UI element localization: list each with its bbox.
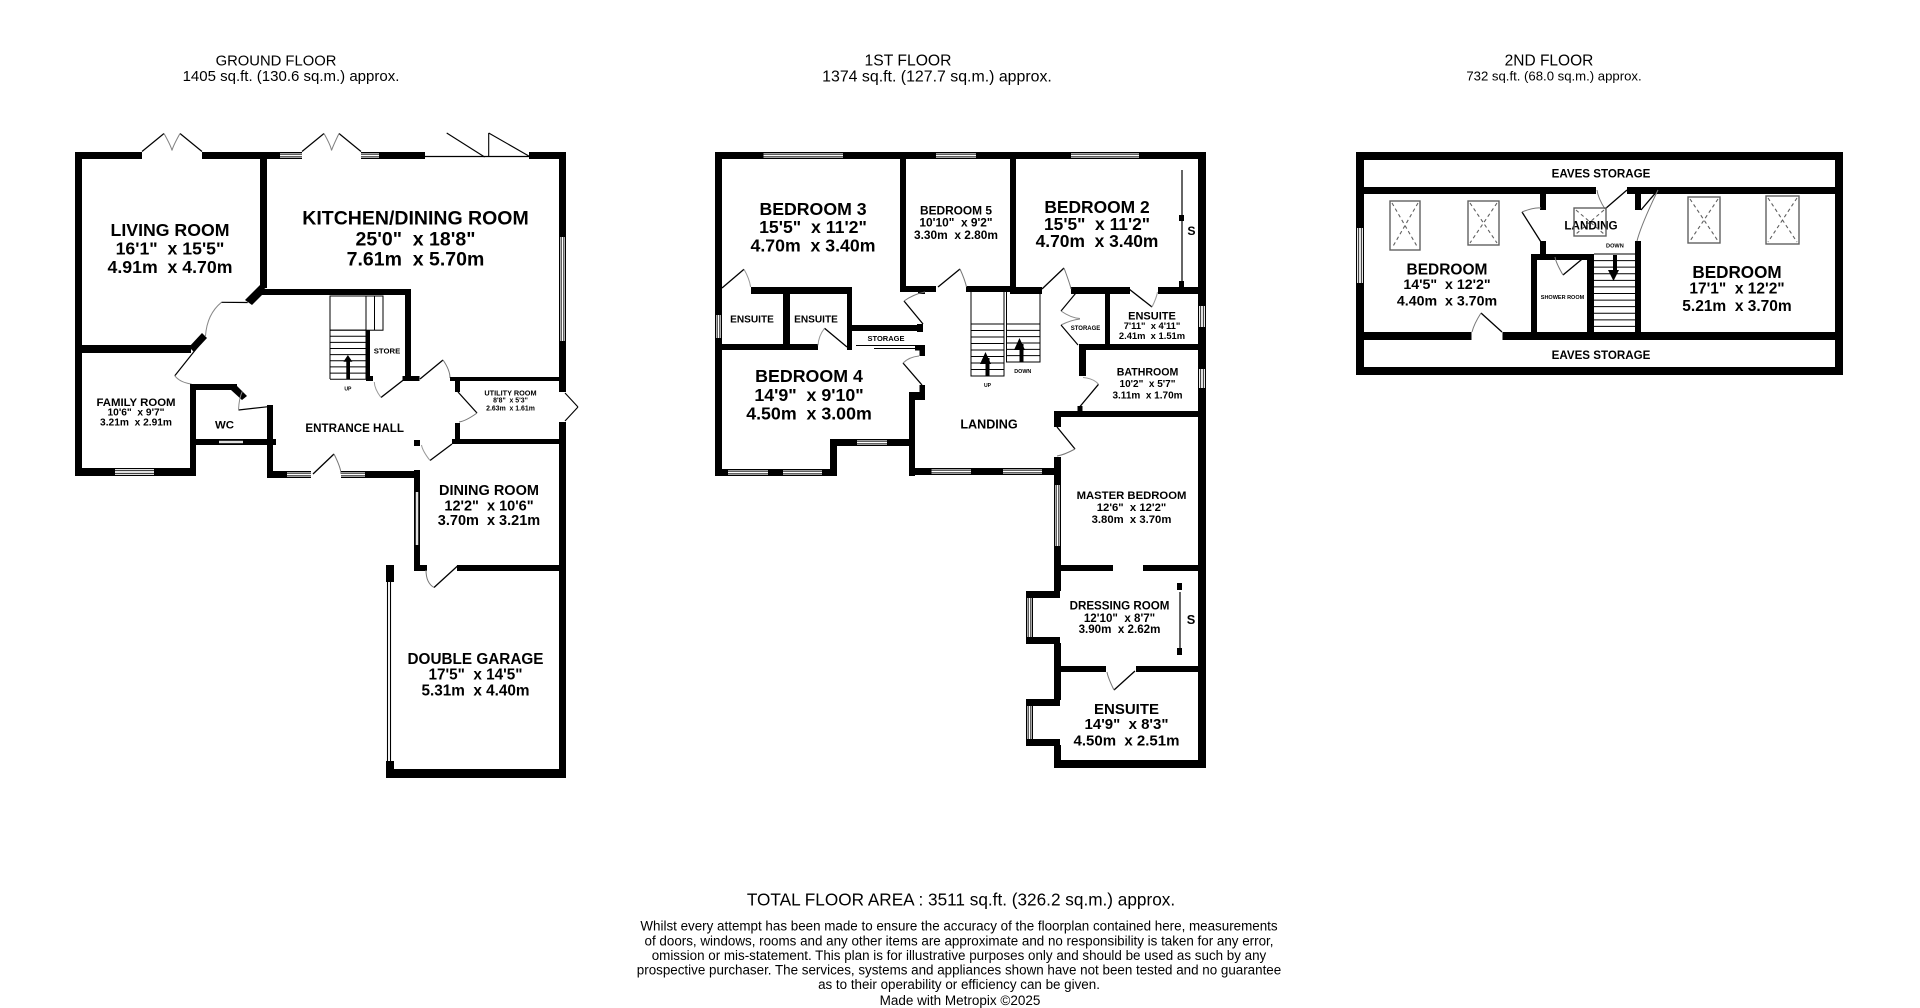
- svg-text:5.31m x 4.40m: 5.31m x 4.40m: [421, 682, 529, 699]
- svg-text:1ST FLOOR: 1ST FLOOR: [865, 53, 952, 70]
- svg-text:STORE: STORE: [374, 347, 401, 356]
- svg-text:STORAGE: STORAGE: [1071, 326, 1101, 332]
- svg-text:2.41m x 1.51m: 2.41m x 1.51m: [1119, 330, 1185, 341]
- svg-text:14'9" x 8'3": 14'9" x 8'3": [1085, 716, 1169, 733]
- svg-text:DINING ROOM: DINING ROOM: [439, 483, 539, 499]
- svg-text:17'1" x 12'2": 17'1" x 12'2": [1689, 281, 1784, 298]
- svg-text:3.80m x 3.70m: 3.80m x 3.70m: [1092, 514, 1172, 526]
- svg-text:LIVING ROOM: LIVING ROOM: [111, 220, 230, 240]
- svg-text:732 sq.ft. (68.0 sq.m.) approx: 732 sq.ft. (68.0 sq.m.) approx.: [1466, 69, 1641, 84]
- svg-text:2.63m x 1.61m: 2.63m x 1.61m: [486, 405, 535, 412]
- svg-text:MASTER BEDROOM: MASTER BEDROOM: [1077, 490, 1187, 502]
- svg-text:15'5" x 11'2": 15'5" x 11'2": [759, 217, 867, 237]
- svg-text:10'2" x 5'7": 10'2" x 5'7": [1120, 379, 1176, 390]
- svg-text:WC: WC: [215, 420, 234, 432]
- svg-text:4.50m x 2.51m: 4.50m x 2.51m: [1074, 733, 1180, 750]
- svg-text:4.40m x 3.70m: 4.40m x 3.70m: [1397, 294, 1497, 310]
- svg-text:DOWN: DOWN: [1606, 244, 1624, 250]
- svg-text:4.70m x 3.40m: 4.70m x 3.40m: [751, 236, 876, 256]
- svg-text:UP: UP: [984, 383, 992, 389]
- svg-text:16'1" x 15'5": 16'1" x 15'5": [116, 239, 225, 259]
- svg-text:14'5" x 12'2": 14'5" x 12'2": [1403, 277, 1490, 293]
- svg-text:1374 sq.ft. (127.7 sq.m.) appr: 1374 sq.ft. (127.7 sq.m.) approx.: [822, 69, 1052, 86]
- svg-text:BEDROOM: BEDROOM: [1692, 263, 1781, 282]
- svg-text:ENTRANCE HALL: ENTRANCE HALL: [305, 422, 404, 435]
- svg-text:as to their operability or eff: as to their operability or efficiency ca…: [818, 977, 1100, 992]
- svg-text:3.90m x 2.62m: 3.90m x 2.62m: [1079, 623, 1161, 636]
- svg-text:5.21m x 3.70m: 5.21m x 3.70m: [1682, 298, 1791, 315]
- svg-text:LANDING: LANDING: [960, 417, 1018, 431]
- svg-text:DOWN: DOWN: [1014, 369, 1031, 375]
- svg-text:BEDROOM 4: BEDROOM 4: [755, 366, 863, 386]
- svg-text:Whilst every attempt has been: Whilst every attempt has been made to en…: [640, 919, 1277, 934]
- svg-text:7.61m x 5.70m: 7.61m x 5.70m: [347, 249, 485, 271]
- svg-text:UTILITY ROOM: UTILITY ROOM: [484, 389, 536, 398]
- svg-text:prospective purchaser. The ser: prospective purchaser. The services, sys…: [637, 963, 1281, 978]
- svg-text:omission or mis-statement. Thi: omission or mis-statement. This plan is …: [652, 948, 1267, 963]
- svg-text:EAVES STORAGE: EAVES STORAGE: [1552, 167, 1651, 180]
- svg-text:3.70m x 3.21m: 3.70m x 3.21m: [438, 513, 540, 529]
- svg-text:4.50m x 3.00m: 4.50m x 3.00m: [746, 404, 872, 424]
- svg-text:1405 sq.ft. (130.6 sq.m.) appr: 1405 sq.ft. (130.6 sq.m.) approx.: [183, 68, 400, 85]
- svg-text:2ND FLOOR: 2ND FLOOR: [1505, 52, 1594, 69]
- svg-text:4.91m x 4.70m: 4.91m x 4.70m: [108, 257, 233, 277]
- svg-text:12'6" x 12'2": 12'6" x 12'2": [1097, 502, 1166, 514]
- svg-text:3.21m x 2.91m: 3.21m x 2.91m: [100, 418, 172, 429]
- svg-text:EAVES STORAGE: EAVES STORAGE: [1552, 349, 1651, 362]
- svg-text:3.30m x 2.80m: 3.30m x 2.80m: [914, 228, 998, 242]
- svg-text:ENSUITE: ENSUITE: [730, 315, 774, 326]
- svg-text:S: S: [1187, 224, 1195, 238]
- svg-text:ENSUITE: ENSUITE: [794, 315, 838, 326]
- svg-text:KITCHEN/DINING ROOM: KITCHEN/DINING ROOM: [302, 208, 528, 230]
- svg-text:LANDING: LANDING: [1564, 220, 1617, 233]
- svg-text:S: S: [1187, 612, 1196, 627]
- svg-text:DRESSING ROOM: DRESSING ROOM: [1070, 600, 1170, 613]
- svg-text:of doors, windows, rooms and a: of doors, windows, rooms and any other i…: [645, 933, 1274, 948]
- svg-text:UP: UP: [344, 387, 352, 393]
- svg-text:BATHROOM: BATHROOM: [1117, 366, 1179, 378]
- svg-text:8'8" x 5'3": 8'8" x 5'3": [493, 398, 528, 405]
- svg-text:BEDROOM 3: BEDROOM 3: [759, 199, 866, 219]
- svg-text:4.70m x 3.40m: 4.70m x 3.40m: [1036, 231, 1159, 251]
- svg-text:25'0" x 18'8": 25'0" x 18'8": [356, 228, 476, 250]
- svg-text:DOUBLE GARAGE: DOUBLE GARAGE: [408, 651, 544, 668]
- svg-text:3.11m x 1.70m: 3.11m x 1.70m: [1112, 391, 1182, 402]
- svg-text:STORAGE: STORAGE: [868, 334, 905, 343]
- svg-text:17'5" x 14'5": 17'5" x 14'5": [428, 666, 522, 683]
- svg-text:14'9" x 9'10": 14'9" x 9'10": [754, 385, 863, 405]
- svg-text:Made with Metropix ©2025: Made with Metropix ©2025: [880, 993, 1041, 1008]
- svg-text:TOTAL FLOOR AREA : 3511 sq.ft.: TOTAL FLOOR AREA : 3511 sq.ft. (326.2 sq…: [747, 890, 1175, 910]
- svg-text:SHOWER ROOM: SHOWER ROOM: [1541, 295, 1585, 301]
